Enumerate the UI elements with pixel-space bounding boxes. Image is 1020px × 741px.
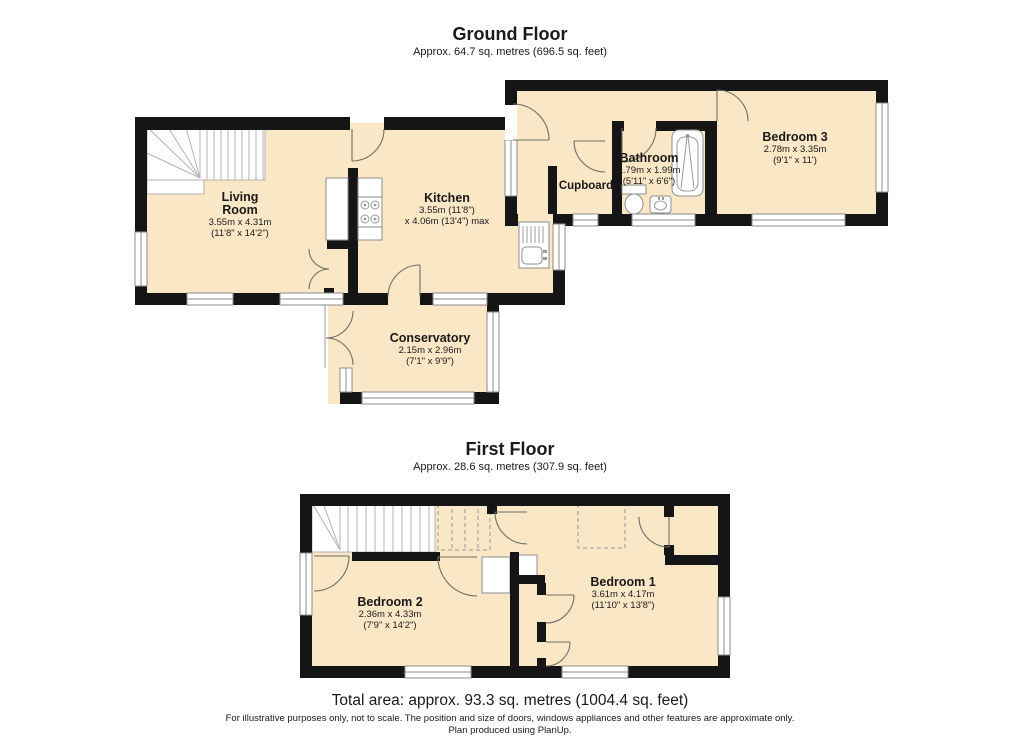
conservatory-label: Conservatory 2.15m x 2.96m (7'1" x 9'9")	[390, 332, 471, 367]
kitchen-dims2: x 4.06m (13'4") max	[405, 216, 489, 227]
bedroom1-dims-metric: 3.61m x 4.17m	[590, 589, 655, 600]
bedroom1-dims-imperial: (11'10" x 13'8")	[590, 600, 655, 611]
first-floor-title: First Floor	[0, 439, 1020, 460]
bedroom2-label: Bedroom 2 2.36m x 4.33m (7'9" x 14'2")	[357, 596, 422, 631]
bedroom3-dims-imperial: (9'1" x 11')	[762, 155, 827, 166]
cupboard-label: Cupboard	[559, 180, 613, 193]
bathroom-label: Bathroom 1.79m x 1.99m (5'11" x 6'6")	[618, 152, 681, 187]
bedroom3-name: Bedroom 3	[762, 131, 827, 144]
bedroom2-dims-metric: 2.36m x 4.33m	[357, 609, 422, 620]
bedroom3-label: Bedroom 3 2.78m x 3.35m (9'1" x 11')	[762, 131, 827, 166]
conservatory-dims-imperial: (7'1" x 9'9")	[390, 356, 471, 367]
kitchen-name: Kitchen	[405, 192, 489, 205]
living-room-dims-metric: 3.55m x 4.31m	[209, 217, 272, 228]
stairwell-void	[482, 557, 510, 593]
floorplan-drawing	[0, 0, 1020, 741]
bedroom1-label: Bedroom 1 3.61m x 4.17m (11'10" x 13'8")	[590, 576, 655, 611]
floorplan-page: { "ground_floor": { "title": "Ground Flo…	[0, 0, 1020, 741]
ground-floor-subtitle: Approx. 64.7 sq. metres (696.5 sq. feet)	[0, 46, 1020, 58]
first-floor-subtitle: Approx. 28.6 sq. metres (307.9 sq. feet)	[0, 461, 1020, 473]
first-floor-plan	[300, 494, 730, 678]
living-room-dims-imperial: (11'8" x 14'2")	[209, 228, 272, 239]
disclaimer-line2: Plan produced using PlanUp.	[0, 725, 1020, 736]
disclaimer-line1: For illustrative purposes only, not to s…	[0, 713, 1020, 724]
counter-living-side	[326, 178, 348, 240]
ground-floor-title: Ground Floor	[0, 24, 1020, 45]
cupboard-name: Cupboard	[559, 180, 613, 193]
bedroom3-dims-metric: 2.78m x 3.35m	[762, 144, 827, 155]
bathroom-name: Bathroom	[618, 152, 681, 165]
living-room-label: Living Room 3.55m x 4.31m (11'8" x 14'2"…	[209, 191, 272, 239]
conservatory-dims-metric: 2.15m x 2.96m	[390, 345, 471, 356]
first-stairs-icon	[312, 500, 435, 552]
bedroom2-dims-imperial: (7'9" x 14'2")	[357, 620, 422, 631]
bathroom-dims-metric: 1.79m x 1.99m	[618, 165, 681, 176]
bedroom1-name: Bedroom 1	[590, 576, 655, 589]
conservatory-name: Conservatory	[390, 332, 471, 345]
living-room-name2: Room	[209, 204, 272, 217]
bedroom2-name: Bedroom 2	[357, 596, 422, 609]
kitchen-sink-icon	[519, 222, 549, 268]
kitchen-dims1: 3.55m (11'8")	[405, 205, 489, 216]
bathroom-dims-imperial: (5'11" x 6'6")	[618, 176, 681, 187]
ground-floor-plan	[135, 80, 888, 404]
kitchen-label: Kitchen 3.55m (11'8") x 4.06m (13'4") ma…	[405, 192, 489, 227]
basin-icon	[650, 196, 671, 213]
total-area-text: Total area: approx. 93.3 sq. metres (100…	[0, 692, 1020, 710]
entry-door-opening	[505, 105, 517, 140]
stove-icon	[358, 197, 382, 227]
